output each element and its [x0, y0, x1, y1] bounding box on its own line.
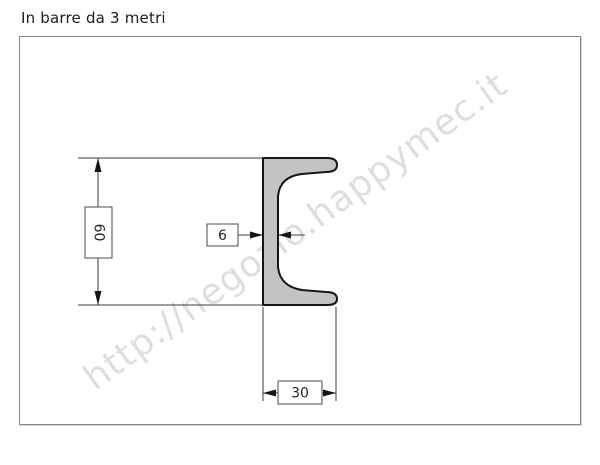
drawing-canvas: http://negozio.happymec.it: [19, 36, 581, 425]
drawing-title: In barre da 3 metri: [21, 9, 166, 27]
watermark: http://negozio.happymec.it: [39, 36, 553, 425]
page: In barre da 3 metri http://negozio.happy…: [0, 0, 600, 465]
